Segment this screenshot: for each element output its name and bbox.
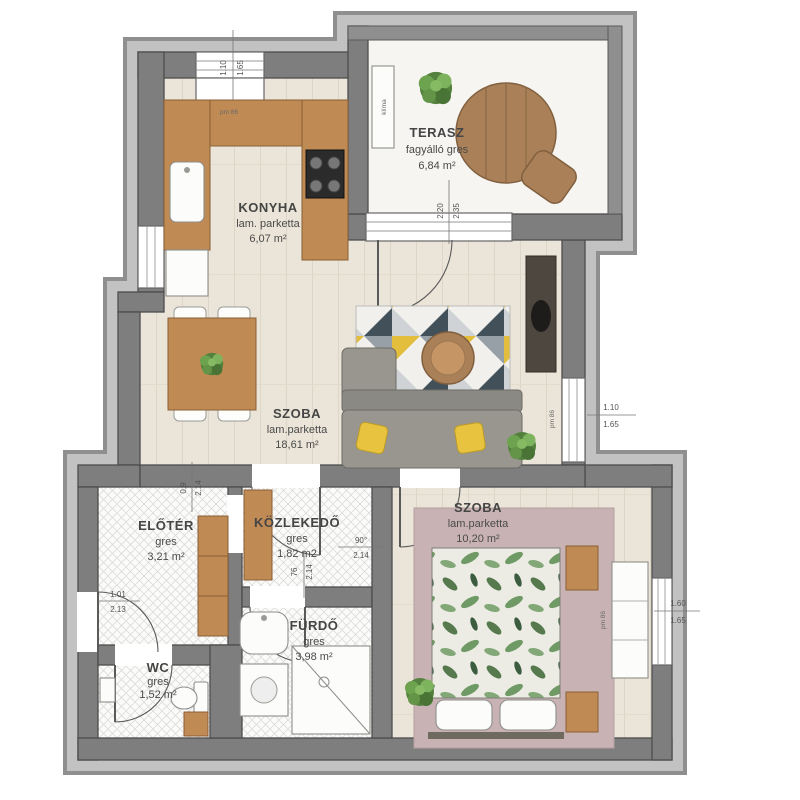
burner-icon	[328, 180, 340, 192]
room-label-eloter: ELŐTÉR	[138, 518, 194, 533]
doorway-kozlekedo	[252, 464, 320, 488]
room-floor-szoba-halo: lam.parketta	[448, 518, 509, 530]
room-floor-eloter: gres	[155, 536, 177, 548]
dim-text: 1.01	[110, 590, 126, 599]
terasz-parapet-right	[608, 26, 622, 214]
burner-icon	[310, 157, 322, 169]
dim-text: 1.10	[219, 60, 228, 76]
window-kitchen-top	[196, 52, 264, 78]
faucet-icon	[184, 167, 190, 173]
bed-pillow	[500, 700, 556, 730]
dim-text: 76	[290, 567, 299, 576]
dim-text: 2.14	[194, 480, 203, 496]
room-area-furdo: 3,98 m²	[295, 651, 333, 663]
dim-text: 1.65	[236, 60, 245, 76]
doorway-furdo	[250, 586, 305, 608]
wc-sink	[100, 678, 115, 702]
sofa-back	[342, 390, 522, 412]
nightstand	[566, 692, 598, 732]
room-label-furdo: FÜRDŐ	[290, 618, 339, 633]
room-floor-konyha: lam. parketta	[236, 218, 300, 230]
floor-plan-page: klíma	[0, 0, 800, 800]
dim-text: 0.9	[179, 482, 188, 494]
parapet-label: pm 86	[549, 410, 556, 428]
window-living-right	[562, 378, 585, 462]
faucet-icon	[261, 615, 267, 621]
kozlekedo-cabinet	[244, 490, 272, 580]
parapet-label: pm 86	[600, 611, 607, 629]
wall-segment	[372, 487, 392, 738]
bedroom-furniture	[405, 508, 648, 748]
klima-label: klíma	[381, 99, 388, 115]
wall-segment	[348, 26, 368, 214]
wall-segment	[210, 645, 242, 738]
bed-pillow	[436, 700, 492, 730]
eloter-wardrobe	[198, 516, 228, 636]
wall-segment	[78, 465, 140, 487]
room-area-szoba-nappali: 18,61 m²	[275, 439, 319, 451]
speaker-icon	[531, 300, 551, 332]
dim-text: 90°	[355, 536, 367, 545]
plant-icon	[405, 678, 434, 706]
room-area-wc: 1,52 m²	[139, 689, 177, 701]
burner-icon	[310, 180, 322, 192]
dresser	[566, 546, 598, 590]
dim-text: 2.35	[452, 203, 461, 219]
room-label-szoba-nappali: SZOBA	[273, 406, 321, 421]
burner-icon	[328, 157, 340, 169]
room-area-szoba-halo: 10,20 m²	[456, 533, 500, 545]
coffee-table-top	[431, 341, 465, 375]
window-bedroom-right	[652, 578, 672, 665]
room-label-terasz: TERASZ	[410, 125, 465, 140]
bed-duvet	[432, 548, 560, 698]
sofa-pillow	[454, 422, 486, 454]
plant-icon	[419, 72, 452, 104]
room-label-kozlekedo: KÖZLEKEDŐ	[254, 515, 340, 530]
room-area-konyha: 6,07 m²	[249, 233, 287, 245]
dim-text: 2.14	[305, 564, 314, 580]
room-floor-wc: gres	[147, 676, 169, 688]
room-area-eloter: 3,21 m²	[147, 551, 185, 563]
kitchen-counter-top	[210, 100, 302, 146]
room-floor-furdo: gres	[303, 636, 325, 648]
room-area-kozlekedo: 1,82 m2	[277, 548, 317, 560]
room-floor-kozlekedo: gres	[286, 533, 308, 545]
wc-cabinet	[184, 712, 208, 736]
room-label-konyha: KONYHA	[238, 200, 297, 215]
dim-text: 1.65	[670, 616, 686, 625]
doorway-entrance	[77, 592, 99, 652]
room-area-terasz: 6,84 m²	[418, 160, 456, 172]
dim-text: 2.14	[353, 551, 369, 560]
room-floor-terasz: fagyálló gres	[406, 144, 469, 156]
room-label-szoba-halo: SZOBA	[454, 500, 502, 515]
wall-segment	[118, 312, 140, 465]
window-kitchen-left	[138, 226, 164, 288]
dim-text: 2.13	[110, 605, 126, 614]
wall-segment	[585, 465, 672, 487]
parapet-label: pm 86	[220, 109, 238, 116]
room-floor-szoba-nappali: lam.parketta	[267, 424, 328, 436]
plant-icon	[200, 353, 223, 375]
washing-machine-door	[251, 677, 277, 703]
bed-headboard	[428, 732, 564, 739]
doorway-eloter-kozlekedo	[227, 495, 243, 553]
wall-segment	[118, 292, 164, 312]
dim-text: 1.60	[670, 599, 686, 608]
dim-text: 2.20	[436, 203, 445, 219]
window-sill-cabinet	[196, 78, 264, 102]
dishwasher	[166, 250, 208, 296]
terasz-parapet-top	[348, 26, 622, 40]
sofa-pillow	[355, 421, 388, 454]
wardrobe	[612, 562, 648, 678]
dim-text: 1.65	[603, 420, 619, 429]
room-label-wc: WC	[147, 660, 170, 675]
floor-plan-svg: klíma	[0, 0, 800, 800]
dim-text: 1.10	[603, 403, 619, 412]
plant-icon	[507, 432, 536, 460]
